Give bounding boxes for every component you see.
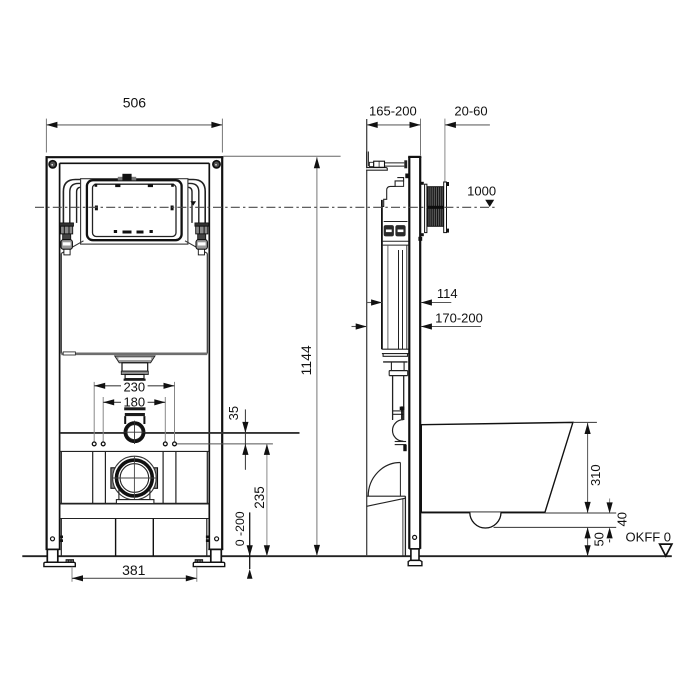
- svg-text:1000: 1000: [467, 184, 496, 199]
- svg-text:506: 506: [123, 94, 147, 110]
- svg-text:114: 114: [437, 286, 458, 301]
- svg-text:0 -200: 0 -200: [233, 511, 247, 546]
- svg-text:310: 310: [588, 464, 603, 486]
- svg-text:40: 40: [614, 512, 629, 526]
- svg-text:230: 230: [123, 380, 145, 395]
- svg-text:20-60: 20-60: [454, 103, 487, 118]
- svg-text:35: 35: [226, 406, 241, 420]
- svg-text:165-200: 165-200: [369, 104, 417, 119]
- svg-text:50: 50: [591, 532, 606, 546]
- svg-text:180: 180: [123, 394, 145, 409]
- svg-text:OKFF 0: OKFF 0: [626, 529, 672, 544]
- svg-text:1144: 1144: [298, 345, 314, 375]
- svg-text:170-200: 170-200: [435, 310, 483, 325]
- svg-text:381: 381: [122, 562, 146, 578]
- svg-text:235: 235: [252, 486, 267, 509]
